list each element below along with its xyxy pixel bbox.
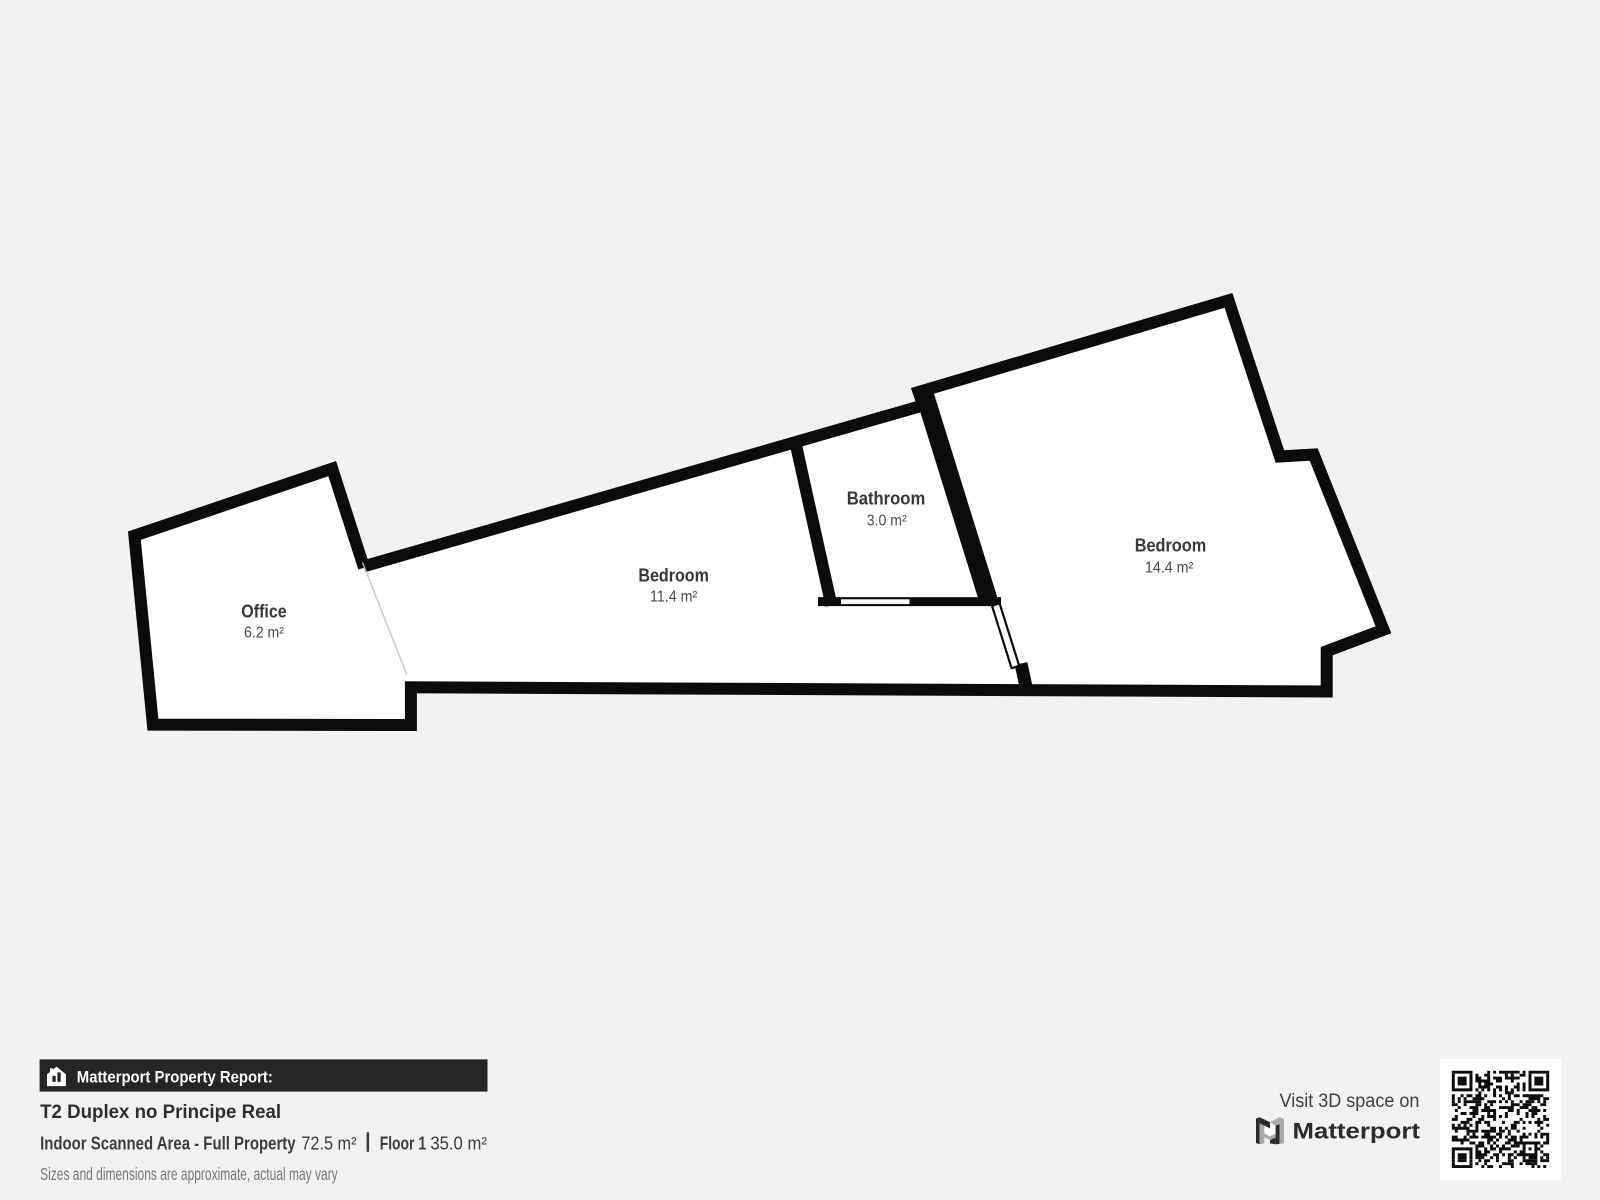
svg-text:35.0 m²: 35.0 m² [430,1134,487,1154]
svg-text:Floor 1: Floor 1 [380,1134,426,1154]
svg-text:72.5 m²: 72.5 m² [301,1134,356,1154]
svg-text:Indoor Scanned Area - Full Pro: Indoor Scanned Area - Full Property [40,1134,295,1154]
svg-text:Visit 3D space on: Visit 3D space on [1280,1091,1420,1112]
svg-text:Sizes and dimensions are appro: Sizes and dimensions are approximate, ac… [40,1164,338,1184]
svg-text:Matterport Property Report:: Matterport Property Report: [77,1068,273,1087]
svg-text:T2 Duplex no Principe Real: T2 Duplex no Principe Real [40,1102,281,1123]
svg-text:Matterport: Matterport [1293,1119,1421,1144]
